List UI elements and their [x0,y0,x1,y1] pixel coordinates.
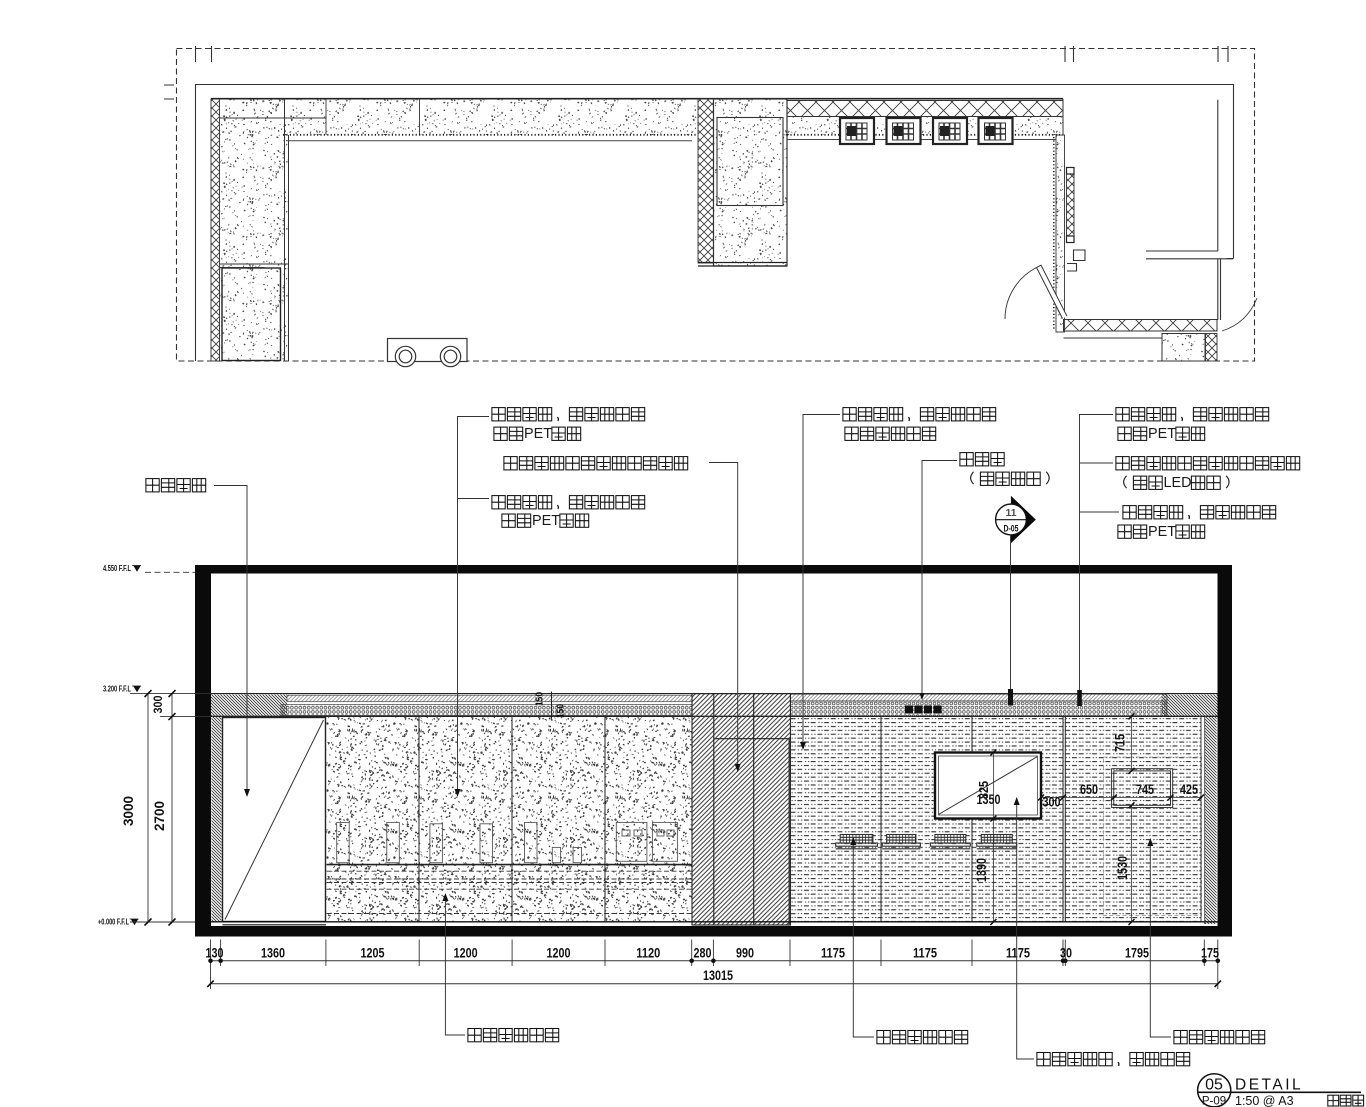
svg-text:PET: PET [524,426,552,442]
svg-text:300: 300 [151,695,165,713]
svg-text:PET: PET [1148,524,1176,540]
svg-text:1390: 1390 [974,858,989,882]
svg-text:425: 425 [1180,782,1198,797]
svg-text:150: 150 [535,692,546,706]
svg-text:13015: 13015 [703,967,733,983]
svg-text:1205: 1205 [361,945,385,961]
svg-text:280: 280 [694,945,712,961]
svg-text:1175: 1175 [913,945,937,961]
svg-text:150: 150 [556,704,567,718]
svg-text:3.200 F.F.L: 3.200 F.F.L [103,685,131,694]
svg-text:1175: 1175 [821,945,845,961]
svg-text:30: 30 [1060,945,1072,961]
svg-text:745: 745 [1136,782,1154,797]
svg-text:175: 175 [1201,945,1219,961]
svg-text:1350: 1350 [977,792,1001,807]
svg-text:1:50 @ A3: 1:50 @ A3 [1235,1094,1294,1107]
svg-text:1530: 1530 [1115,856,1130,880]
svg-text:300: 300 [1043,795,1061,810]
svg-text:1120: 1120 [636,945,660,961]
svg-text:05: 05 [1205,1077,1223,1094]
svg-text:4.550 F.F.L: 4.550 F.F.L [103,564,131,573]
svg-text:DETAIL: DETAIL [1235,1077,1303,1094]
svg-text:D-05: D-05 [1004,524,1019,534]
svg-text:1200: 1200 [454,945,478,961]
svg-text:PET: PET [1148,426,1176,442]
svg-text:11: 11 [1006,508,1017,519]
svg-text:LED: LED [1164,475,1192,491]
svg-text:990: 990 [736,945,754,961]
svg-text:2700: 2700 [152,801,167,831]
svg-text:1200: 1200 [547,945,571,961]
svg-text:P-09: P-09 [1202,1096,1226,1107]
svg-text:+0.000 F.F.L: +0.000 F.F.L [98,918,129,927]
svg-text:PET: PET [532,513,560,529]
svg-text:1175: 1175 [1006,945,1030,961]
svg-text:650: 650 [1080,782,1098,797]
svg-text:715: 715 [1113,734,1128,752]
svg-text:130: 130 [206,945,224,961]
svg-text:3000: 3000 [121,796,136,826]
svg-text:1360: 1360 [261,945,285,961]
svg-text:1795: 1795 [1125,945,1149,961]
